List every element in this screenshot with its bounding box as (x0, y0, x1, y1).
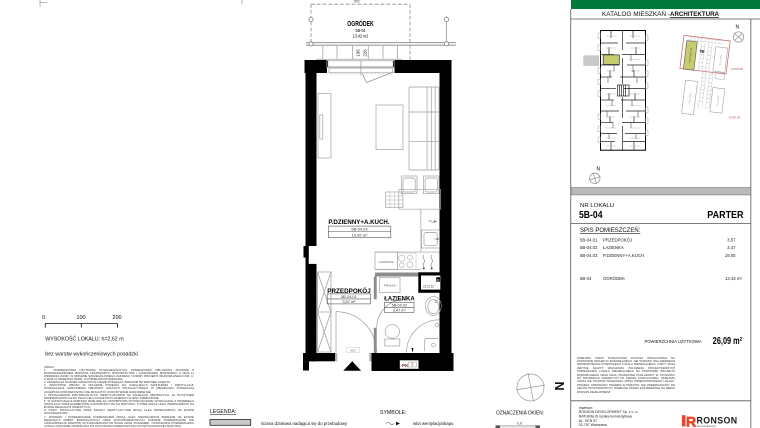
svg-text:POWIERZCHNIA UŻYTKOWA: POWIERZCHNIA UŻYTKOWA (645, 338, 703, 344)
svg-text:5B-04.03: 5B-04.03 (580, 253, 598, 258)
svg-text:P.DZIENNY+A.KUCH.: P.DZIENNY+A.KUCH. (328, 219, 389, 226)
svg-text:592: 592 (354, 0, 360, 4)
svg-text:ŁAZIENKA: ŁAZIENKA (603, 245, 624, 250)
svg-text:ARCHITEKTURA: ARCHITEKTURA (670, 11, 719, 18)
svg-text:100: 100 (76, 315, 85, 321)
svg-text:200: 200 (112, 315, 121, 321)
svg-text:PARTER: PARTER (707, 209, 744, 221)
svg-text:OZNACZENIA OKIEN:: OZNACZENIA OKIEN: (496, 411, 544, 417)
svg-text:5B-04.01: 5B-04.01 (341, 295, 356, 299)
svg-text:PRZEDPOKÓJ: PRZEDPOKÓJ (603, 237, 632, 242)
svg-text:R: R (686, 413, 696, 428)
svg-text:ŁAZIENKA: ŁAZIENKA (384, 297, 415, 303)
svg-text:bez warstw wykończeniowych pos: bez warstw wykończeniowych posadzki (45, 352, 138, 358)
svg-text:19,05 m²: 19,05 m² (352, 232, 368, 237)
svg-text:13,42 m²: 13,42 m² (725, 276, 743, 281)
svg-text:WYSOKOŚĆ LOKALU: h=2,62 m: WYSOKOŚĆ LOKALU: h=2,62 m (45, 335, 124, 343)
svg-text:0,9: 0,9 (517, 422, 522, 426)
svg-text:5B-04.01: 5B-04.01 (580, 237, 598, 242)
svg-text:KATALOG MIESZKAŃ -: KATALOG MIESZKAŃ - (602, 9, 670, 18)
svg-text:N: N (736, 25, 740, 31)
svg-text:SPIS POMIESZCZEŃ:: SPIS POMIESZCZEŃ: (580, 227, 641, 234)
svg-text:3,47 m²: 3,47 m² (393, 309, 407, 313)
svg-text:N: N (597, 167, 601, 173)
svg-text:0: 0 (42, 315, 45, 321)
svg-text:226: 226 (362, 49, 367, 57)
svg-text:OGRÓDEK: OGRÓDEK (347, 19, 374, 28)
svg-text:N: N (552, 381, 566, 390)
svg-text:90/2: 90/2 (350, 348, 356, 352)
svg-text:5B-04: 5B-04 (356, 28, 367, 33)
svg-text:3,57 m²: 3,57 m² (342, 300, 356, 304)
svg-text:PRALKA: PRALKA (384, 284, 396, 288)
svg-text:LODÓWKA: LODÓWKA (379, 259, 394, 264)
svg-text:3,47: 3,47 (727, 245, 736, 250)
svg-text:OGRÓDEK: OGRÓDEK (603, 276, 625, 281)
svg-text:ETAP 5B: ETAP 5B (732, 67, 743, 71)
svg-text:5B-04.02: 5B-04.02 (580, 245, 598, 250)
svg-text:02-797 Warszawa: 02-797 Warszawa (579, 423, 607, 427)
svg-text:26,09 m²: 26,09 m² (713, 336, 743, 347)
svg-text:5B-04: 5B-04 (579, 209, 603, 221)
svg-text:PK: PK (402, 363, 409, 368)
svg-text:SYMBOLE:: SYMBOLE: (380, 410, 407, 416)
svg-text:5B: 5B (699, 49, 705, 54)
svg-text:P.DZIENNY+A.KUCH.: P.DZIENNY+A.KUCH. (603, 253, 645, 258)
svg-text:ściana działowa nadająca się d: ściana działowa nadająca się do przebudo… (261, 421, 348, 426)
svg-text:development: development (697, 424, 716, 428)
svg-text:wlot wentylacji/okapu: wlot wentylacji/okapu (413, 421, 454, 426)
svg-text:ETAP 5A: ETAP 5A (729, 116, 740, 120)
svg-text:5B-04: 5B-04 (580, 276, 592, 281)
svg-text:196: 196 (356, 49, 361, 57)
svg-text:LEGENDA:: LEGENDA: (210, 409, 236, 415)
svg-text:13,42 m2: 13,42 m2 (353, 34, 369, 39)
svg-text:19,05: 19,05 (725, 253, 736, 258)
svg-text:5B-04.03: 5B-04.03 (351, 227, 368, 232)
svg-text:5B-04.02: 5B-04.02 (392, 303, 407, 307)
svg-text:3,57: 3,57 (727, 237, 736, 242)
